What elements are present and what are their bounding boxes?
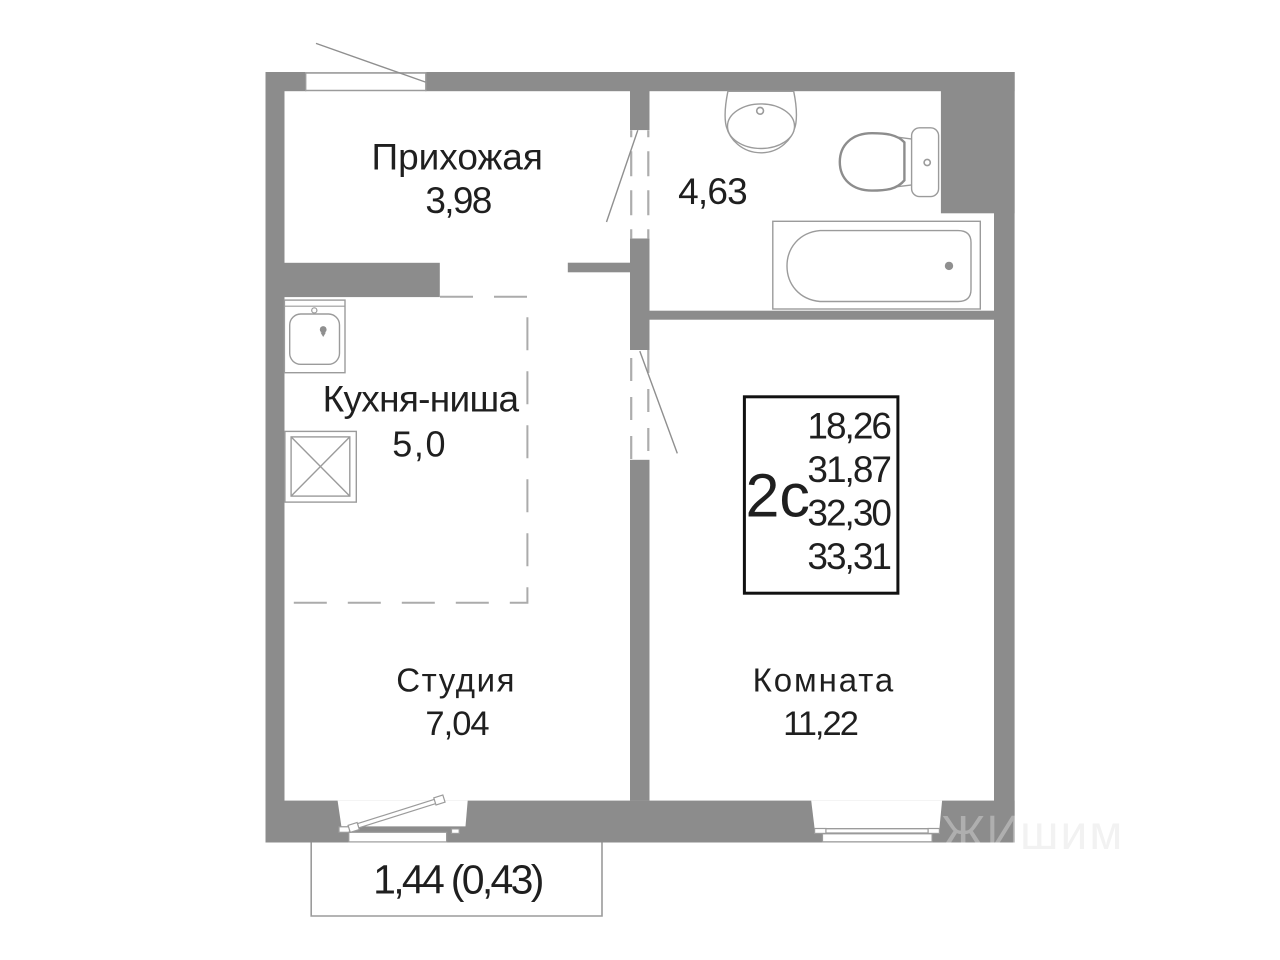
svg-text:ЖИ: ЖИ [941,807,1022,860]
svg-text:Студия: Студия [396,662,516,699]
svg-text:Прихожая: Прихожая [371,137,542,178]
svg-text:32,30: 32,30 [807,493,891,534]
svg-text:5,0: 5,0 [392,423,447,464]
svg-text:4,63: 4,63 [678,171,747,212]
svg-text:шим: шим [1020,807,1124,860]
svg-text:3,98: 3,98 [425,180,490,221]
svg-text:7,04: 7,04 [425,705,489,743]
svg-text:1,44 (0,43): 1,44 (0,43) [373,857,543,903]
svg-text:Кухня-ниша: Кухня-ниша [323,378,520,419]
svg-text:Комната: Комната [753,662,896,699]
svg-text:2с: 2с [746,462,810,530]
svg-text:33,31: 33,31 [807,536,890,577]
svg-text:31,87: 31,87 [807,449,890,490]
svg-text:18,26: 18,26 [807,406,890,447]
svg-text:11,22: 11,22 [783,705,858,743]
